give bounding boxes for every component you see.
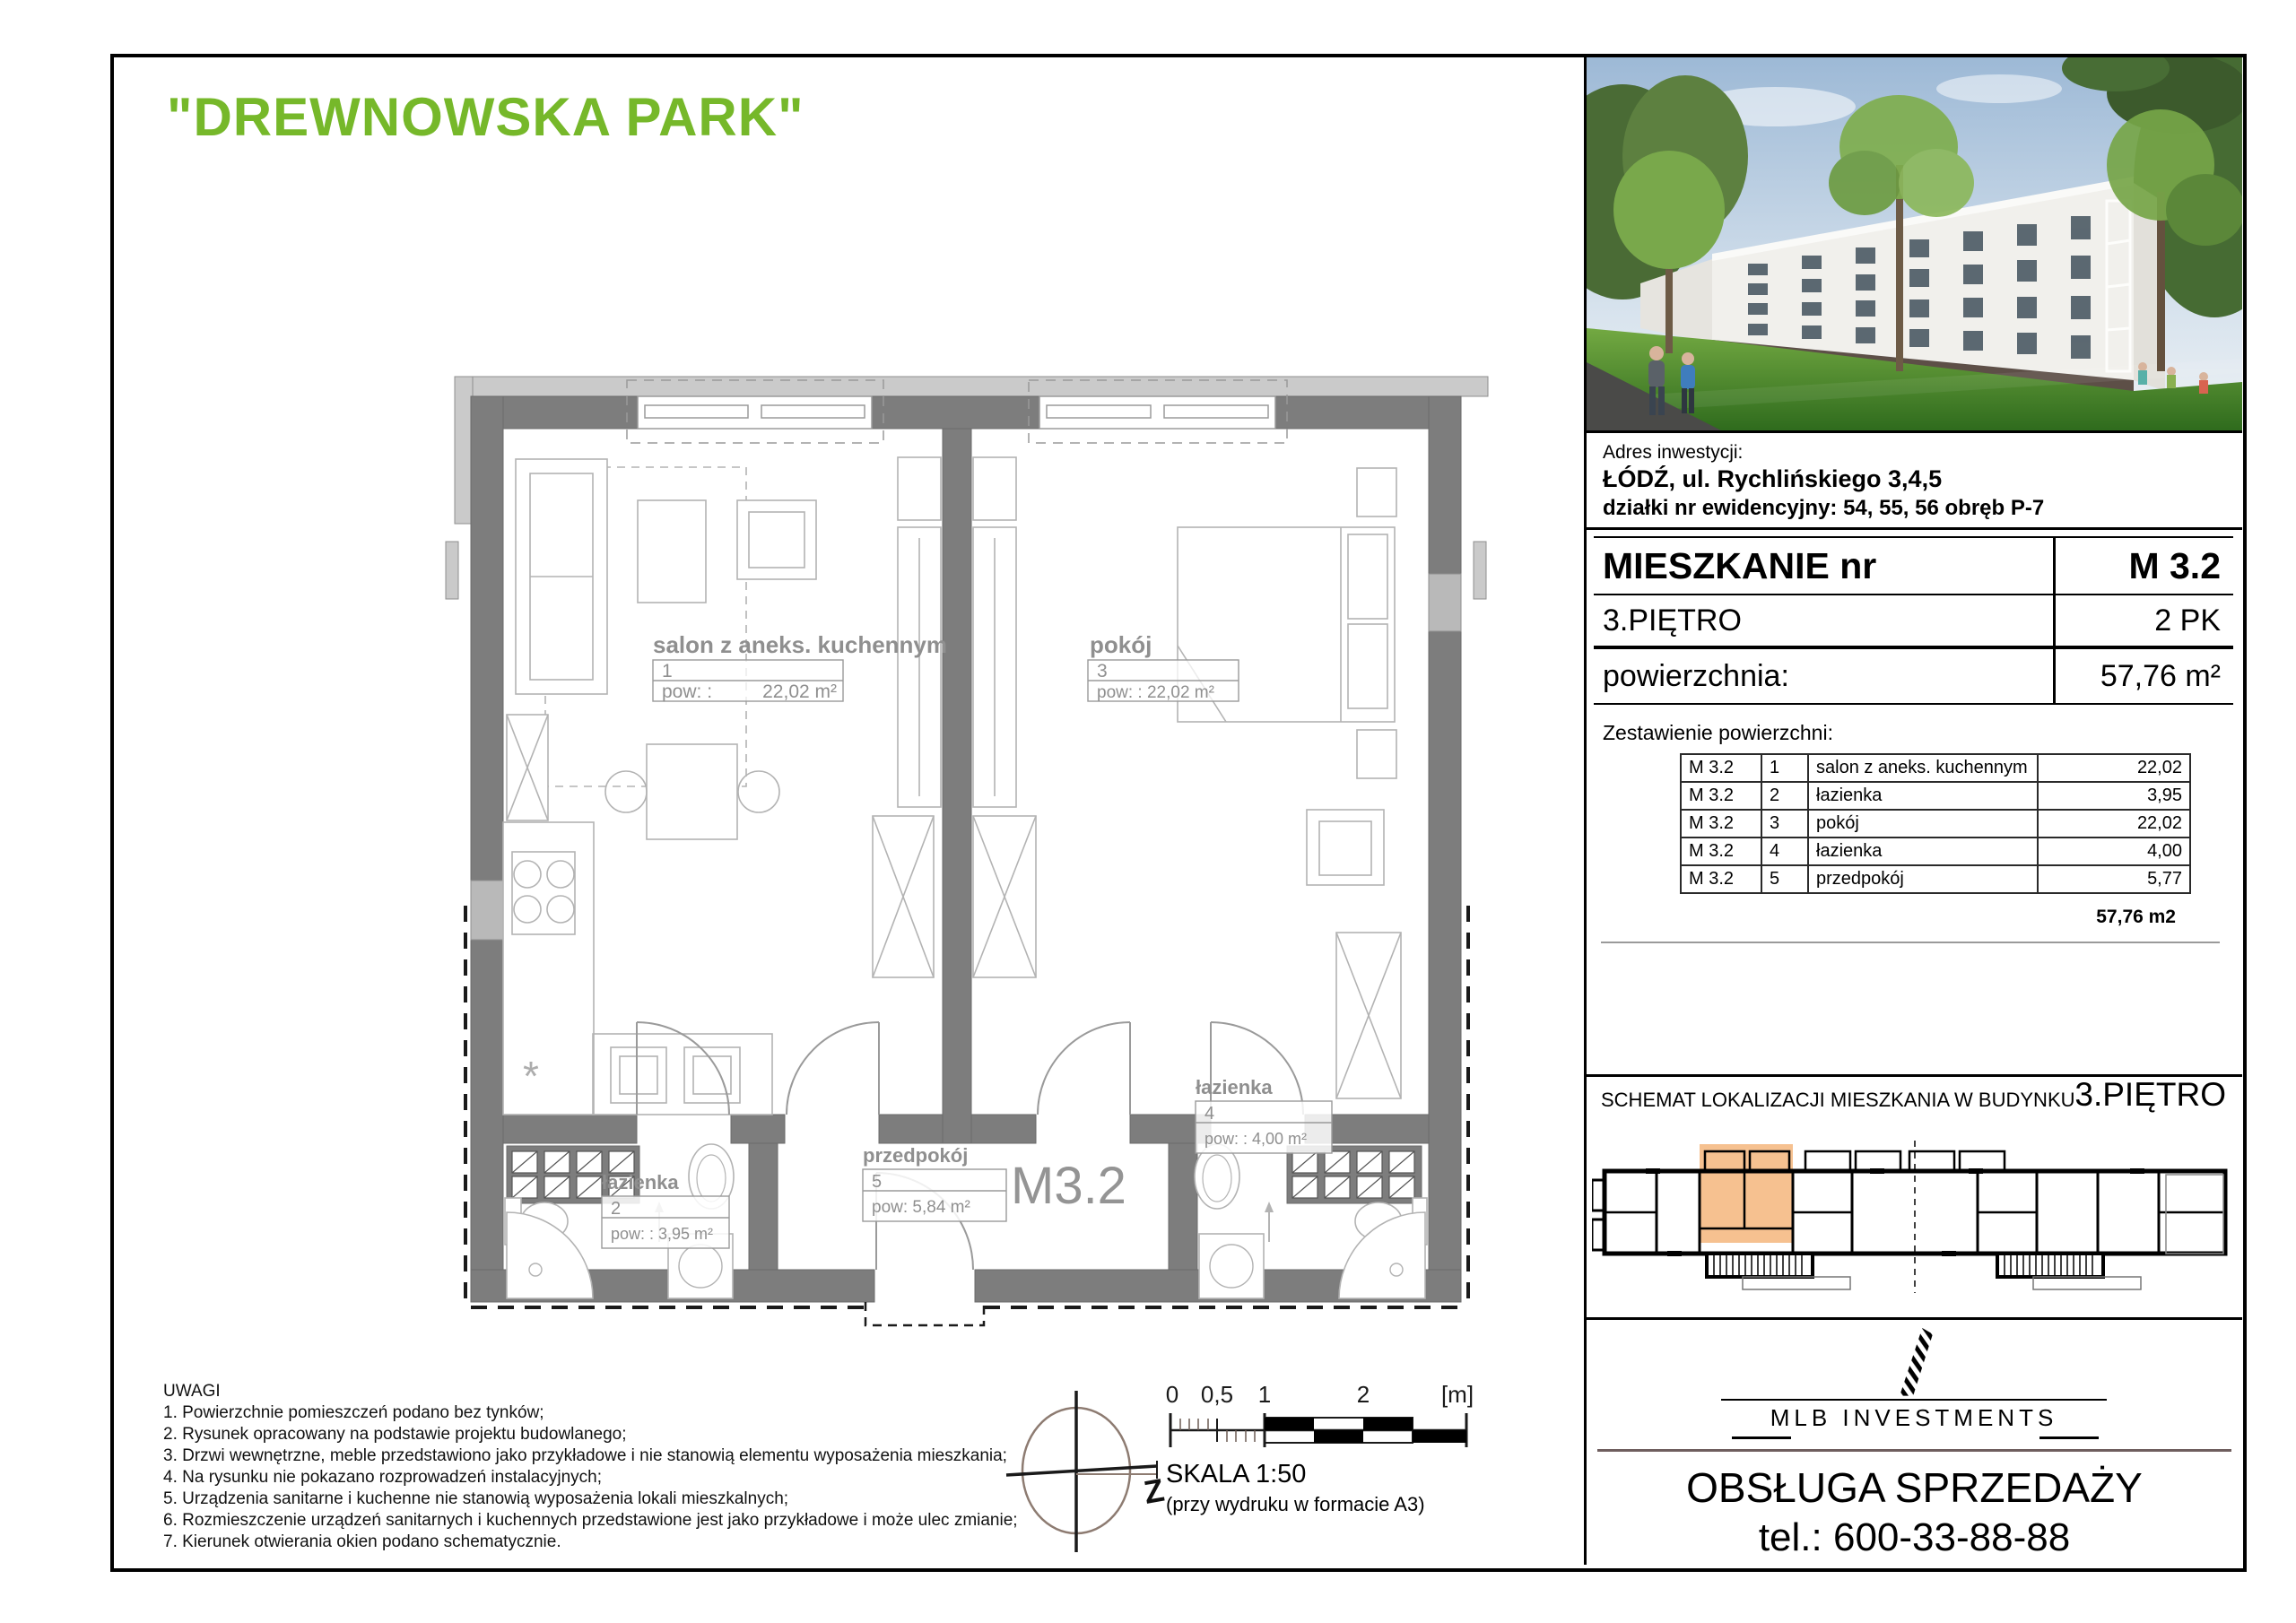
building-photo xyxy=(1587,57,2242,433)
address-label: Adres inwestycji: xyxy=(1603,441,2044,464)
apartment-card: MIESZKANIE nr M 3.2 3.PIĘTRO 2 PK powier… xyxy=(1594,536,2233,705)
room-label-lazienka2: łazienka xyxy=(602,1171,679,1193)
divider-thin xyxy=(1601,942,2220,943)
svg-text:1: 1 xyxy=(662,661,673,681)
sales-phone: tel.: 600-33-88-88 xyxy=(1587,1515,2242,1560)
address-block: Adres inwestycji: ŁÓDŹ, ul. Rychlińskieg… xyxy=(1603,441,2044,522)
table-row: M 3.2 2 łazienka 3,95 xyxy=(1681,782,2190,810)
table-row: M 3.2 4 łazienka 4,00 xyxy=(1681,838,2190,865)
svg-text:3: 3 xyxy=(1097,661,1108,681)
svg-text:0: 0 xyxy=(1166,1381,1178,1408)
cell: 22,02 xyxy=(2038,754,2190,782)
area-summary-table: M 3.2 1 salon z aneks. kuchennym 22,02 M… xyxy=(1680,753,2191,894)
building-location-schematic xyxy=(1592,1141,2238,1306)
svg-text:Z: Z xyxy=(1141,1471,1167,1511)
area-value: 57,76 m² xyxy=(2051,659,2233,694)
brand-rule-left xyxy=(1732,1436,1791,1439)
svg-text:[m]: [m] xyxy=(1441,1381,1474,1408)
svg-text:pow: : 3,95 m²: pow: : 3,95 m² xyxy=(611,1225,713,1243)
pokoj-furniture xyxy=(1178,468,1401,1098)
card-row-number: MIESZKANIE nr M 3.2 xyxy=(1594,536,2233,595)
cell: łazienka xyxy=(1808,838,2038,865)
brand-rule-right xyxy=(2039,1436,2099,1439)
datasheet-page: "DREWNOWSKA PARK" xyxy=(0,0,2296,1623)
cell: 5 xyxy=(1761,865,1808,893)
cell: M 3.2 xyxy=(1681,865,1761,893)
area-summary-heading: Zestawienie powierzchni: xyxy=(1603,721,1833,745)
svg-text:pow: : 22,02 m²: pow: : 22,02 m² xyxy=(1097,683,1214,702)
info-panel: Adres inwestycji: ŁÓDŹ, ul. Rychlińskieg… xyxy=(1584,57,2242,1565)
room-label-lazienka4: łazienka xyxy=(1196,1076,1273,1098)
svg-text:1: 1 xyxy=(1258,1381,1271,1408)
cell: łazienka xyxy=(1808,782,2038,810)
svg-text:2: 2 xyxy=(611,1199,621,1219)
divider xyxy=(1587,1317,2242,1320)
compass-icon: Z xyxy=(1004,1385,1184,1556)
address-line1: ŁÓDŹ, ul. Rychlińskiego 3,4,5 xyxy=(1603,464,2044,495)
floor-value: 3.PIĘTRO xyxy=(1594,603,2051,638)
card-row-floor: 3.PIĘTRO 2 PK xyxy=(1594,595,2233,649)
cell: przedpokój xyxy=(1808,865,2038,893)
note-item: 4. Na rysunku nie pokazano rozprowadzeń … xyxy=(163,1467,1018,1488)
cell: 1 xyxy=(1761,754,1808,782)
cell: 3 xyxy=(1761,810,1808,838)
svg-text:0,5: 0,5 xyxy=(1201,1381,1233,1408)
room-label-przedpokoj: przedpokój xyxy=(863,1144,968,1167)
floor-plan: * xyxy=(444,350,1502,1336)
cell: salon z aneks. kuchennym xyxy=(1808,754,2038,782)
svg-text:pow: :: pow: : xyxy=(662,681,712,702)
table-row: M 3.2 3 pokój 22,02 xyxy=(1681,810,2190,838)
apartment-number: M 3.2 xyxy=(2051,545,2233,587)
room-label-salon: salon z aneks. kuchennym xyxy=(653,631,947,658)
table-row: M 3.2 1 salon z aneks. kuchennym 22,02 xyxy=(1681,754,2190,782)
brand-rule-top xyxy=(1721,1399,2107,1401)
schemat-floor: 3.PIĘTRO xyxy=(2074,1076,2226,1114)
note-item: 7. Kierunek otwierania okien podano sche… xyxy=(163,1532,1018,1553)
svg-text:22,02 m²: 22,02 m² xyxy=(762,681,837,702)
schemat-title: SCHEMAT LOKALIZACJI MIESZKANIA W BUDYNKU xyxy=(1601,1089,2075,1112)
mlb-logo-icon xyxy=(1874,1324,1954,1399)
note-item: 5. Urządzenia sanitarne i kuchenne nie s… xyxy=(163,1488,1018,1510)
cell: M 3.2 xyxy=(1681,754,1761,782)
cell: 3,95 xyxy=(2038,782,2190,810)
svg-text:pow: : 4,00 m²: pow: : 4,00 m² xyxy=(1205,1130,1307,1148)
apartment-number-label: M3.2 xyxy=(1011,1157,1126,1215)
card-title: MIESZKANIE nr xyxy=(1594,545,2051,587)
scale-bar: 0 0,5 1 2 [m] xyxy=(1161,1381,1502,1462)
cell: pokój xyxy=(1808,810,2038,838)
cell: M 3.2 xyxy=(1681,782,1761,810)
cell: 4 xyxy=(1761,838,1808,865)
svg-text:4: 4 xyxy=(1205,1104,1214,1124)
cell: 4,00 xyxy=(2038,838,2190,865)
cell: M 3.2 xyxy=(1681,810,1761,838)
brand-name: MLB INVESTMENTS xyxy=(1721,1404,2107,1432)
svg-text:2: 2 xyxy=(1357,1381,1370,1408)
svg-text:5: 5 xyxy=(872,1172,882,1192)
note-item: 3. Drzwi wewnętrzne, meble przedstawiono… xyxy=(163,1445,1018,1467)
notes-heading: UWAGI xyxy=(163,1381,1018,1402)
scale-label: SKALA 1:50 xyxy=(1166,1460,1306,1489)
table-row: M 3.2 5 przedpokój 5,77 xyxy=(1681,865,2190,893)
room-label-pokoj: pokój xyxy=(1090,631,1152,658)
divider xyxy=(1587,527,2242,530)
page-title: "DREWNOWSKA PARK" xyxy=(167,86,804,148)
address-line2: działki nr ewidencyjny: 54, 55, 56 obręb… xyxy=(1603,495,2044,522)
svg-text:*: * xyxy=(523,1053,539,1099)
note-item: 1. Powierzchnie pomieszczeń podano bez t… xyxy=(163,1402,1018,1424)
area-total: 57,76 m2 xyxy=(1680,907,2183,928)
cell: 5,77 xyxy=(2038,865,2190,893)
salon-furniture: * xyxy=(503,459,816,1115)
cell: M 3.2 xyxy=(1681,838,1761,865)
cell: 2 xyxy=(1761,782,1808,810)
rooms-value: 2 PK xyxy=(2051,603,2233,638)
divider-maroon xyxy=(1597,1449,2231,1452)
area-label: powierzchnia: xyxy=(1594,659,2051,694)
sales-label: OBSŁUGA SPRZEDAŻY xyxy=(1587,1463,2242,1512)
svg-text:pow: 5,84 m²: pow: 5,84 m² xyxy=(872,1198,970,1217)
card-row-area: powierzchnia: 57,76 m² xyxy=(1594,649,2233,705)
note-item: 6. Rozmieszczenie urządzeń sanitarnych i… xyxy=(163,1510,1018,1532)
scale-note: (przy wydruku w formacie A3) xyxy=(1166,1493,1425,1516)
notes-block: UWAGI 1. Powierzchnie pomieszczeń podano… xyxy=(163,1381,1018,1553)
note-item: 2. Rysunek opracowany na podstawie proje… xyxy=(163,1424,1018,1445)
cell: 22,02 xyxy=(2038,810,2190,838)
